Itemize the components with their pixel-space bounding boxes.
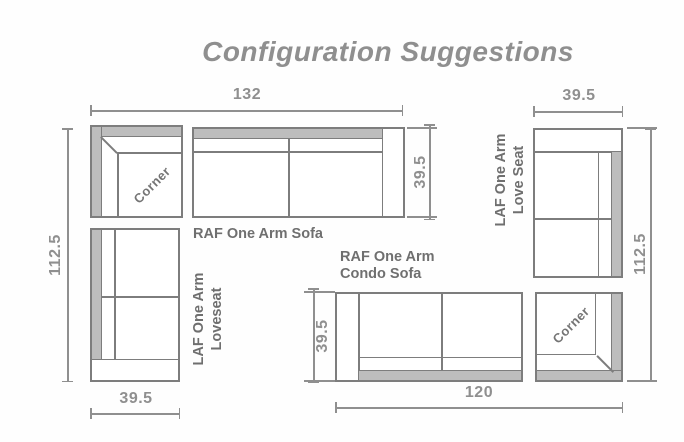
extension-line bbox=[304, 291, 335, 293]
dimension-value-39-5-sofa: 39.5 bbox=[412, 155, 430, 188]
laf-love-seat-label-line2: Love Seat bbox=[510, 134, 528, 227]
seat-divider-line bbox=[288, 139, 290, 216]
corner-label-right: Corner bbox=[550, 304, 593, 347]
backrest-strip-right bbox=[611, 294, 621, 380]
backrest-strip bbox=[92, 230, 102, 360]
dimension-value-120: 120 bbox=[465, 384, 493, 402]
laf-love-seat-label-line1: LAF One Arm bbox=[492, 134, 510, 227]
back-cushion-line bbox=[117, 152, 119, 216]
dimension-line-39-5-loveseat bbox=[90, 413, 180, 415]
laf-loveseat-label-line2: Loveseat bbox=[208, 273, 226, 366]
back-cushion-line bbox=[598, 152, 600, 276]
raf-sofa-label: RAF One Arm Sofa bbox=[193, 226, 323, 243]
extension-line bbox=[407, 127, 437, 129]
condo-sofa-label: RAF One Arm Condo Sofa bbox=[340, 249, 435, 284]
backrest-strip-left bbox=[92, 127, 102, 216]
dimension-line-132 bbox=[90, 110, 403, 112]
corner-label-left: Corner bbox=[131, 164, 174, 207]
dimension-value-39-5-top-right: 39.5 bbox=[562, 87, 595, 105]
extension-line bbox=[407, 216, 437, 218]
dimension-value-112-5-right: 112.5 bbox=[632, 233, 650, 275]
corner-seam-line bbox=[100, 136, 117, 153]
condo-sofa-label-line1: RAF One Arm bbox=[340, 249, 435, 266]
dimension-value-39-5-loveseat: 39.5 bbox=[119, 390, 152, 408]
dimension-value-39-5-condo: 39.5 bbox=[314, 319, 332, 352]
laf-loveseat-label-line1: LAF One Arm bbox=[190, 273, 208, 366]
dimension-line-112-5-left bbox=[67, 128, 69, 382]
configuration-diagram: Configuration Suggestions Corner RAF One… bbox=[0, 0, 684, 442]
back-cushion-line bbox=[359, 357, 521, 359]
arm-line-bottom bbox=[92, 359, 178, 361]
back-cushion-line bbox=[537, 354, 596, 356]
backrest-strip bbox=[611, 152, 621, 276]
arm-line-left bbox=[358, 294, 360, 380]
laf-loveseat-label: LAF One Arm Loveseat bbox=[190, 273, 226, 366]
seat-divider-line bbox=[102, 296, 178, 298]
laf-one-arm-loveseat-piece bbox=[90, 228, 180, 382]
backrest-strip-top bbox=[92, 127, 181, 137]
back-cushion-line bbox=[114, 230, 116, 360]
laf-love-seat-label: LAF One Arm Love Seat bbox=[492, 134, 528, 227]
dimension-value-112-5-left: 112.5 bbox=[47, 234, 65, 276]
dimension-line-120 bbox=[335, 407, 623, 409]
dimension-line-112-5-right bbox=[650, 128, 652, 381]
dimension-value-132: 132 bbox=[233, 86, 261, 104]
corner-piece-right: Corner bbox=[535, 292, 623, 382]
arm-line-top bbox=[535, 151, 621, 153]
diagram-title: Configuration Suggestions bbox=[202, 36, 574, 68]
backrest-strip-bottom bbox=[537, 370, 621, 380]
backrest-strip bbox=[359, 370, 521, 380]
corner-piece-left: Corner bbox=[90, 125, 183, 218]
condo-sofa-label-line2: Condo Sofa bbox=[340, 266, 435, 283]
laf-one-arm-love-seat-piece bbox=[533, 128, 623, 278]
raf-one-arm-sofa-piece bbox=[192, 127, 405, 218]
backrest-strip bbox=[194, 129, 383, 139]
dimension-line-39-5-top-right bbox=[533, 111, 623, 113]
seat-divider-line bbox=[535, 218, 611, 220]
arm-line-right bbox=[382, 129, 384, 216]
seat-divider-line bbox=[441, 294, 443, 370]
back-cushion-line bbox=[595, 294, 597, 355]
back-cushion-line bbox=[117, 152, 181, 154]
raf-one-arm-condo-sofa-piece bbox=[335, 292, 523, 382]
